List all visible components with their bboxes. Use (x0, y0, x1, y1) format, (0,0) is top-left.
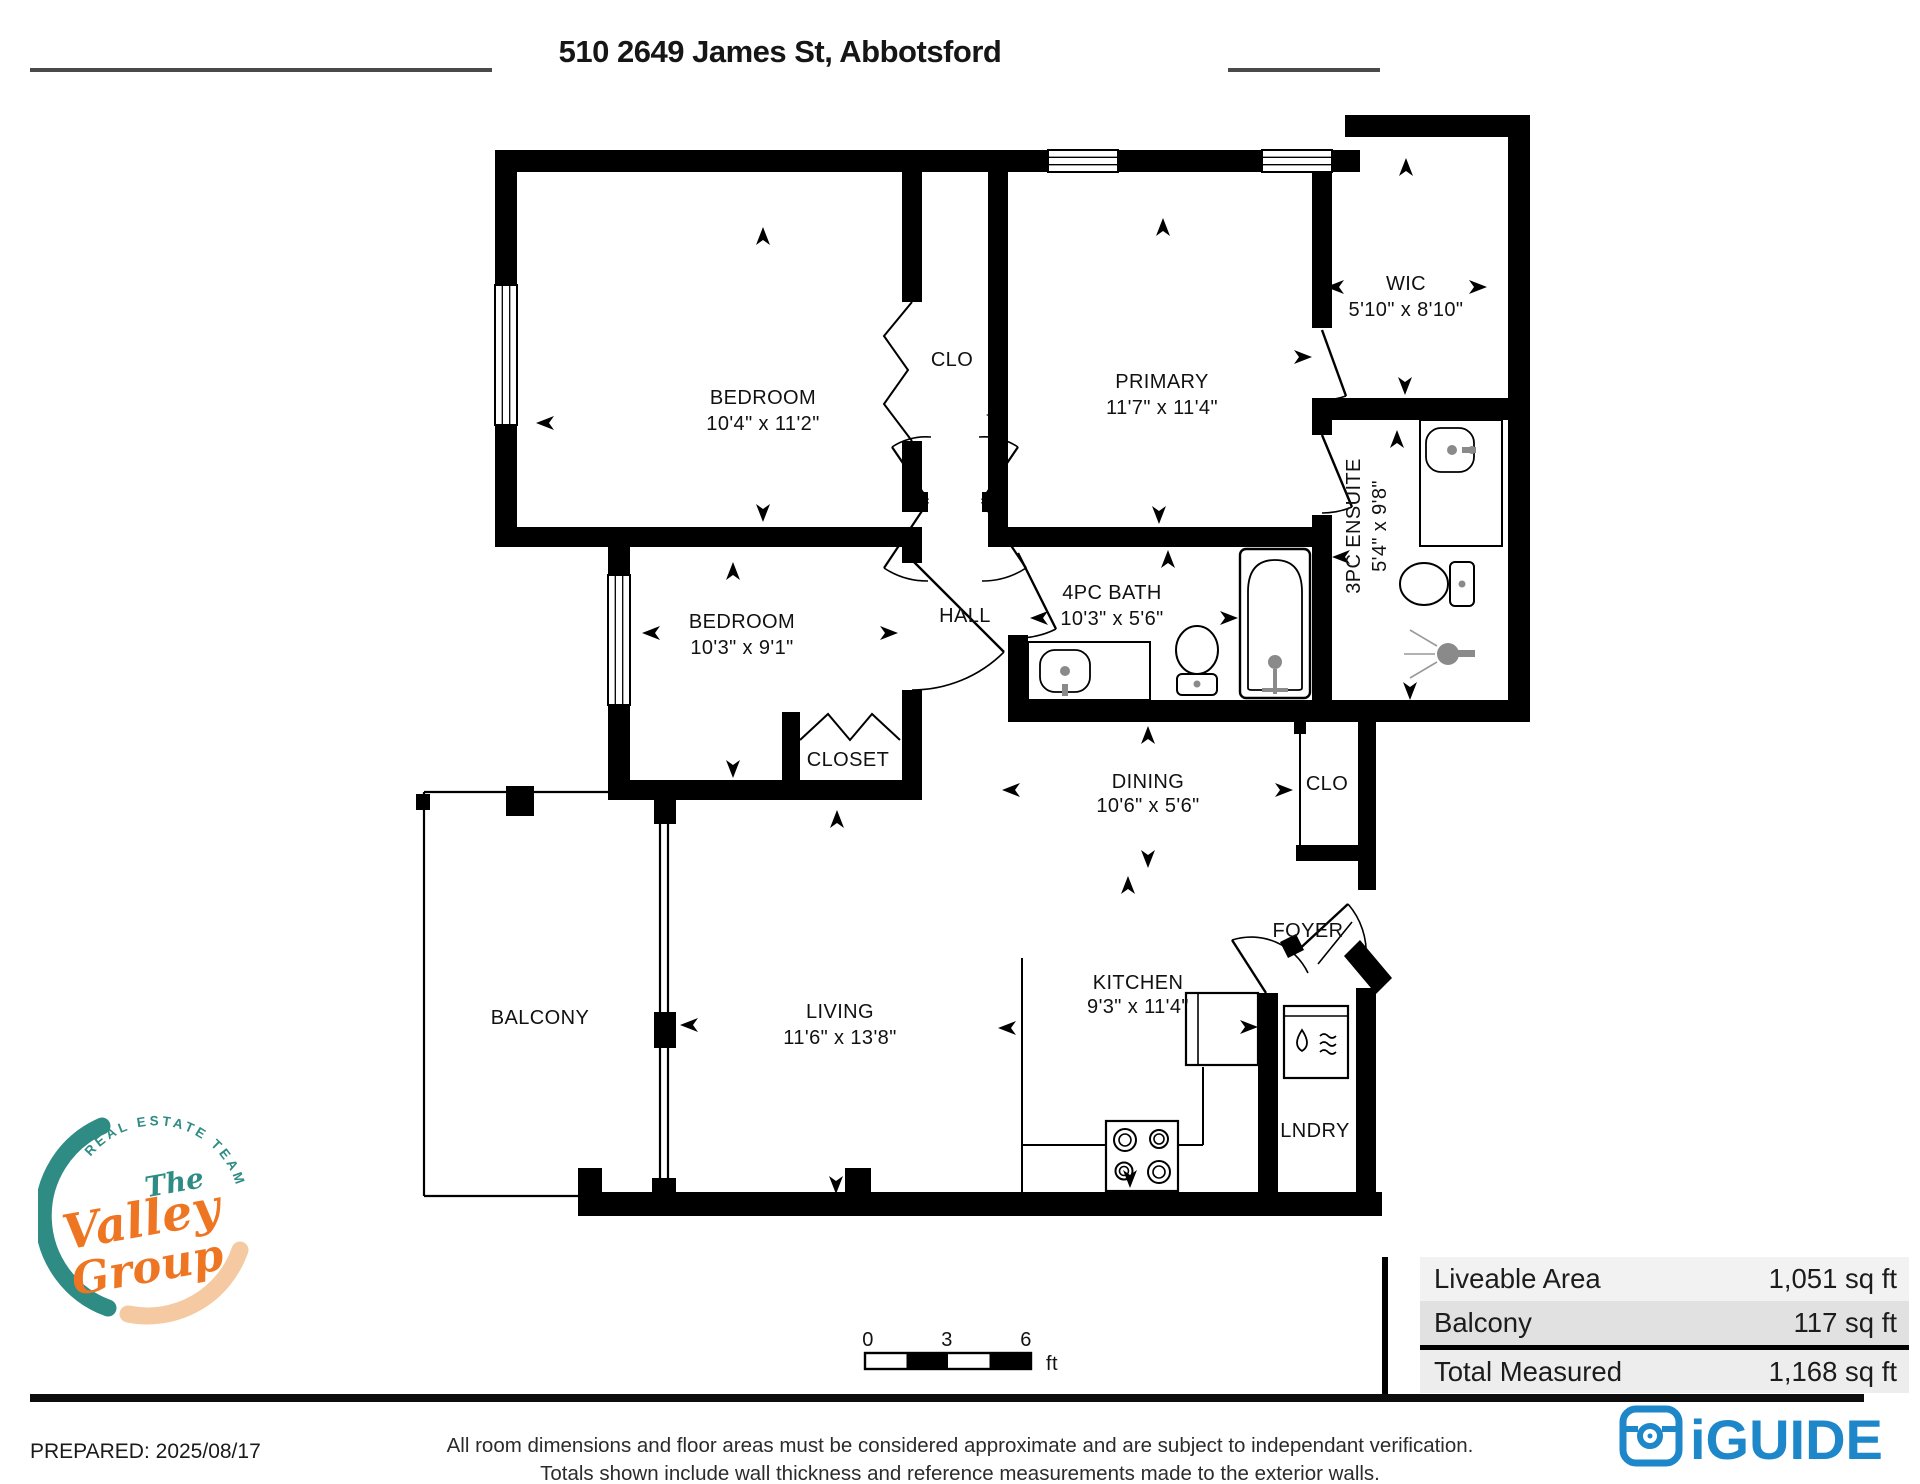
room-label-primary: PRIMARY (1115, 371, 1209, 393)
room-label-lndry: LNDRY (1280, 1120, 1349, 1142)
scale-tick-0: 0 (862, 1329, 874, 1351)
room-dims-dining: 10'6" x 5'6" (1096, 795, 1199, 817)
area-value: 1,168 sq ft (1769, 1356, 1897, 1388)
toilet-icon (1176, 626, 1218, 695)
door-icon (1322, 330, 1346, 400)
scale-tick-3: 3 (941, 1329, 953, 1351)
area-row-liveable: Liveable Area 1,051 sq ft (1420, 1257, 1909, 1301)
shower-head-icon (1404, 630, 1475, 678)
iguide-logo: iGUIDE (1618, 1402, 1918, 1474)
area-row-total: Total Measured 1,168 sq ft (1420, 1350, 1909, 1393)
window-icon (1262, 150, 1332, 172)
room-dims-primary: 11'7" x 11'4" (1106, 397, 1218, 419)
area-table-accent (1382, 1257, 1388, 1394)
room-label-bedroom-2: BEDROOM (689, 611, 795, 633)
valley-group-logo: REAL ESTATE TEAM The Valley Group (38, 1106, 262, 1332)
stove-icon (1106, 1121, 1178, 1191)
toilet-icon (1400, 562, 1474, 606)
sink-icon (1420, 420, 1502, 546)
room-label-hall: HALL (939, 605, 991, 627)
prepared-date: PREPARED: 2025/08/17 (30, 1440, 261, 1464)
floorplan-page: 510 2649 James St, Abbotsford (0, 0, 1920, 1484)
scale-tick-6: 6 (1020, 1329, 1032, 1351)
room-label-dining: DINING (1112, 771, 1184, 793)
balcony-outline (424, 792, 668, 1196)
bifold-door-icon (800, 714, 900, 740)
room-dims-ensuite: 5'4" x 9'8" (1369, 480, 1391, 572)
footer-rule (30, 1394, 1864, 1402)
area-value: 1,051 sq ft (1769, 1263, 1897, 1295)
room-label-bath: 4PC BATH (1062, 582, 1162, 604)
room-dims-bedroom-2: 10'3" x 9'1" (690, 637, 793, 659)
room-dims-living: 11'6" x 13'8" (783, 1027, 896, 1049)
room-label-balcony: BALCONY (491, 1007, 589, 1029)
area-label: Total Measured (1434, 1356, 1622, 1388)
room-label-closet: CLOSET (807, 749, 889, 771)
sliding-door-icon (660, 824, 668, 1178)
area-table: Liveable Area 1,051 sq ft Balcony 117 sq… (1420, 1257, 1909, 1393)
room-label-wic: WIC (1386, 273, 1426, 295)
room-label-bedroom-1: BEDROOM (710, 387, 816, 409)
room-dims-kitchen: 9'3" x 11'4" (1087, 996, 1189, 1018)
disclaimer-line-1: All room dimensions and floor areas must… (360, 1434, 1560, 1458)
area-label: Balcony (1434, 1307, 1532, 1339)
iguide-wordmark: iGUIDE (1690, 1408, 1883, 1471)
room-label-clo-foyer: CLO (1306, 773, 1348, 795)
area-value: 117 sq ft (1794, 1307, 1897, 1339)
room-label-foyer: FOYER (1273, 920, 1344, 942)
window-icon (1048, 150, 1118, 172)
area-label: Liveable Area (1434, 1263, 1601, 1295)
walls (416, 115, 1530, 1216)
window-icon (495, 285, 517, 425)
room-dims-wic: 5'10" x 8'10" (1349, 299, 1464, 321)
iguide-icon (1623, 1409, 1679, 1463)
room-label-ensuite: 3PC ENSUITE (1343, 458, 1365, 594)
sink-icon (1028, 642, 1150, 700)
room-dims-bath: 10'3" x 5'6" (1060, 608, 1163, 630)
room-label-living: LIVING (806, 1001, 874, 1023)
scale-unit: ft (1046, 1353, 1058, 1375)
area-row-balcony: Balcony 117 sq ft (1420, 1301, 1909, 1345)
washer-icon (1284, 1006, 1348, 1078)
window-icon (608, 575, 630, 705)
bathtub-icon (1240, 549, 1310, 698)
room-label-kitchen: KITCHEN (1093, 972, 1184, 994)
bifold-door-icon (884, 302, 912, 441)
scale-bar: 0 3 6 ft (862, 1329, 1058, 1375)
room-label-clo-top: CLO (931, 349, 973, 371)
disclaimer-line-2: Totals shown include wall thickness and … (360, 1462, 1560, 1484)
room-dims-bedroom-1: 10'4" x 11'2" (706, 413, 819, 435)
